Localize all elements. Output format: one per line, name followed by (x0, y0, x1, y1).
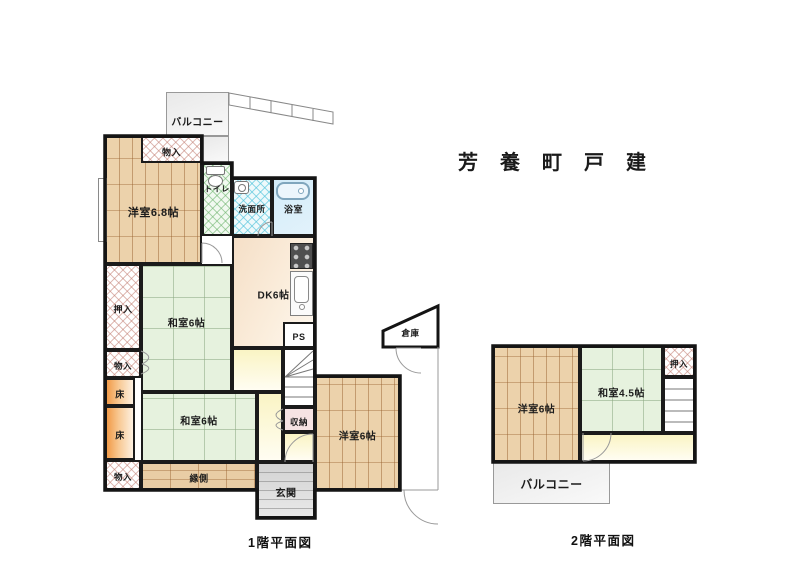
washbasin-fixture (234, 181, 249, 194)
room-ps-label: PS (292, 332, 305, 342)
room-yoshitsu-6-1f: 洋室6帖 (315, 376, 400, 490)
room-oshiire-2f: 押入 (663, 346, 695, 377)
room-washitsu-4-5-label: 和室4.5帖 (598, 384, 645, 399)
room-balcony-1f-label: バルコニー (171, 114, 223, 129)
page-title: 芳養町戸建 (458, 146, 668, 175)
room-monoire-top-label: 物入 (162, 145, 181, 158)
room-monoire-mid-label: 物入 (114, 360, 132, 372)
toilet-tank-fixture (206, 166, 225, 175)
room-shuunou: 収納 (283, 407, 315, 432)
room-toko-1: 床 (105, 378, 135, 406)
room-genkan-label: 玄関 (276, 485, 297, 500)
floor2-caption: 2階平面図 (571, 530, 635, 549)
room-stairs-1f (283, 348, 315, 407)
room-monoire-bottom-label: 物入 (114, 471, 132, 483)
eave-strip-segments (250, 97, 313, 121)
room-senmenjo-label: 洗面所 (238, 203, 265, 215)
floorplan-canvas: 芳養町戸建 1階平面図 2階平面図 バルコニー洋室6.8帖物入トイレ洗面所浴室D… (0, 0, 800, 587)
room-hall-b (283, 432, 315, 462)
room-shuunou-label: 収納 (290, 416, 308, 428)
room-monoire-bottom: 物入 (105, 460, 141, 490)
room-hall-2f (580, 433, 695, 462)
room-yoshitsu-6-8-label: 洋室6.8帖 (128, 204, 179, 220)
room-washitsu-4-5: 和室4.5帖 (580, 346, 663, 433)
room-souko: 倉庫 (385, 322, 436, 344)
door-swing-souko (396, 348, 421, 373)
room-ps: PS (283, 322, 315, 348)
room-washitsu-6-upper: 和室6帖 (141, 264, 232, 392)
room-toko-2-label: 床 (115, 429, 125, 442)
bay-window-fixture (98, 178, 107, 242)
bathtub-fixture (276, 182, 310, 200)
eave-strip (229, 93, 333, 124)
room-toilet-room-label: トイレ (204, 184, 230, 195)
kitchen-sink-fixture (290, 271, 313, 316)
room-engawa-label: 縁側 (189, 472, 208, 485)
terrace-boundary (400, 347, 438, 490)
floor1-caption: 1階平面図 (248, 532, 312, 551)
room-engawa: 縁側 (141, 462, 257, 490)
room-monoire-mid: 物入 (105, 350, 141, 378)
room-balcony-1f-ext (202, 136, 229, 163)
room-hall-c (257, 392, 283, 462)
room-washitsu-6-upper-label: 和室6帖 (168, 315, 206, 330)
room-genkan: 玄関 (257, 462, 315, 518)
room-oshiire-1f: 押入 (105, 264, 141, 350)
room-washitsu-6-lower-label: 和室6帖 (180, 413, 218, 428)
room-toko-1-label: 床 (115, 388, 125, 401)
room-monoire-top: 物入 (141, 136, 202, 163)
room-yoshitsu-6-2f: 洋室6帖 (493, 346, 580, 462)
room-yoshitsu-6-1f-label: 洋室6帖 (339, 428, 377, 443)
room-toko-2: 床 (105, 406, 135, 460)
room-bathroom-label: 浴室 (284, 203, 303, 216)
room-souko-label: 倉庫 (401, 327, 419, 339)
room-balcony-1f: バルコニー (166, 92, 229, 136)
room-yoshitsu-6-2f-label: 洋室6帖 (518, 401, 556, 416)
room-stairs-2f (663, 377, 695, 433)
room-balcony-2f-label: バルコニー (520, 476, 582, 493)
door-swing-entry (404, 490, 438, 524)
room-oshiire-2f-label: 押入 (670, 358, 688, 370)
room-washitsu-6-lower: 和室6帖 (141, 392, 257, 462)
room-balcony-2f: バルコニー (493, 462, 610, 504)
room-oshiire-1f-label: 押入 (113, 303, 132, 316)
door-swing-bedroom68 (202, 243, 222, 263)
room-dk-label: DK6帖 (257, 287, 289, 302)
stove-fixture (290, 243, 313, 269)
room-hall-a (232, 348, 283, 392)
